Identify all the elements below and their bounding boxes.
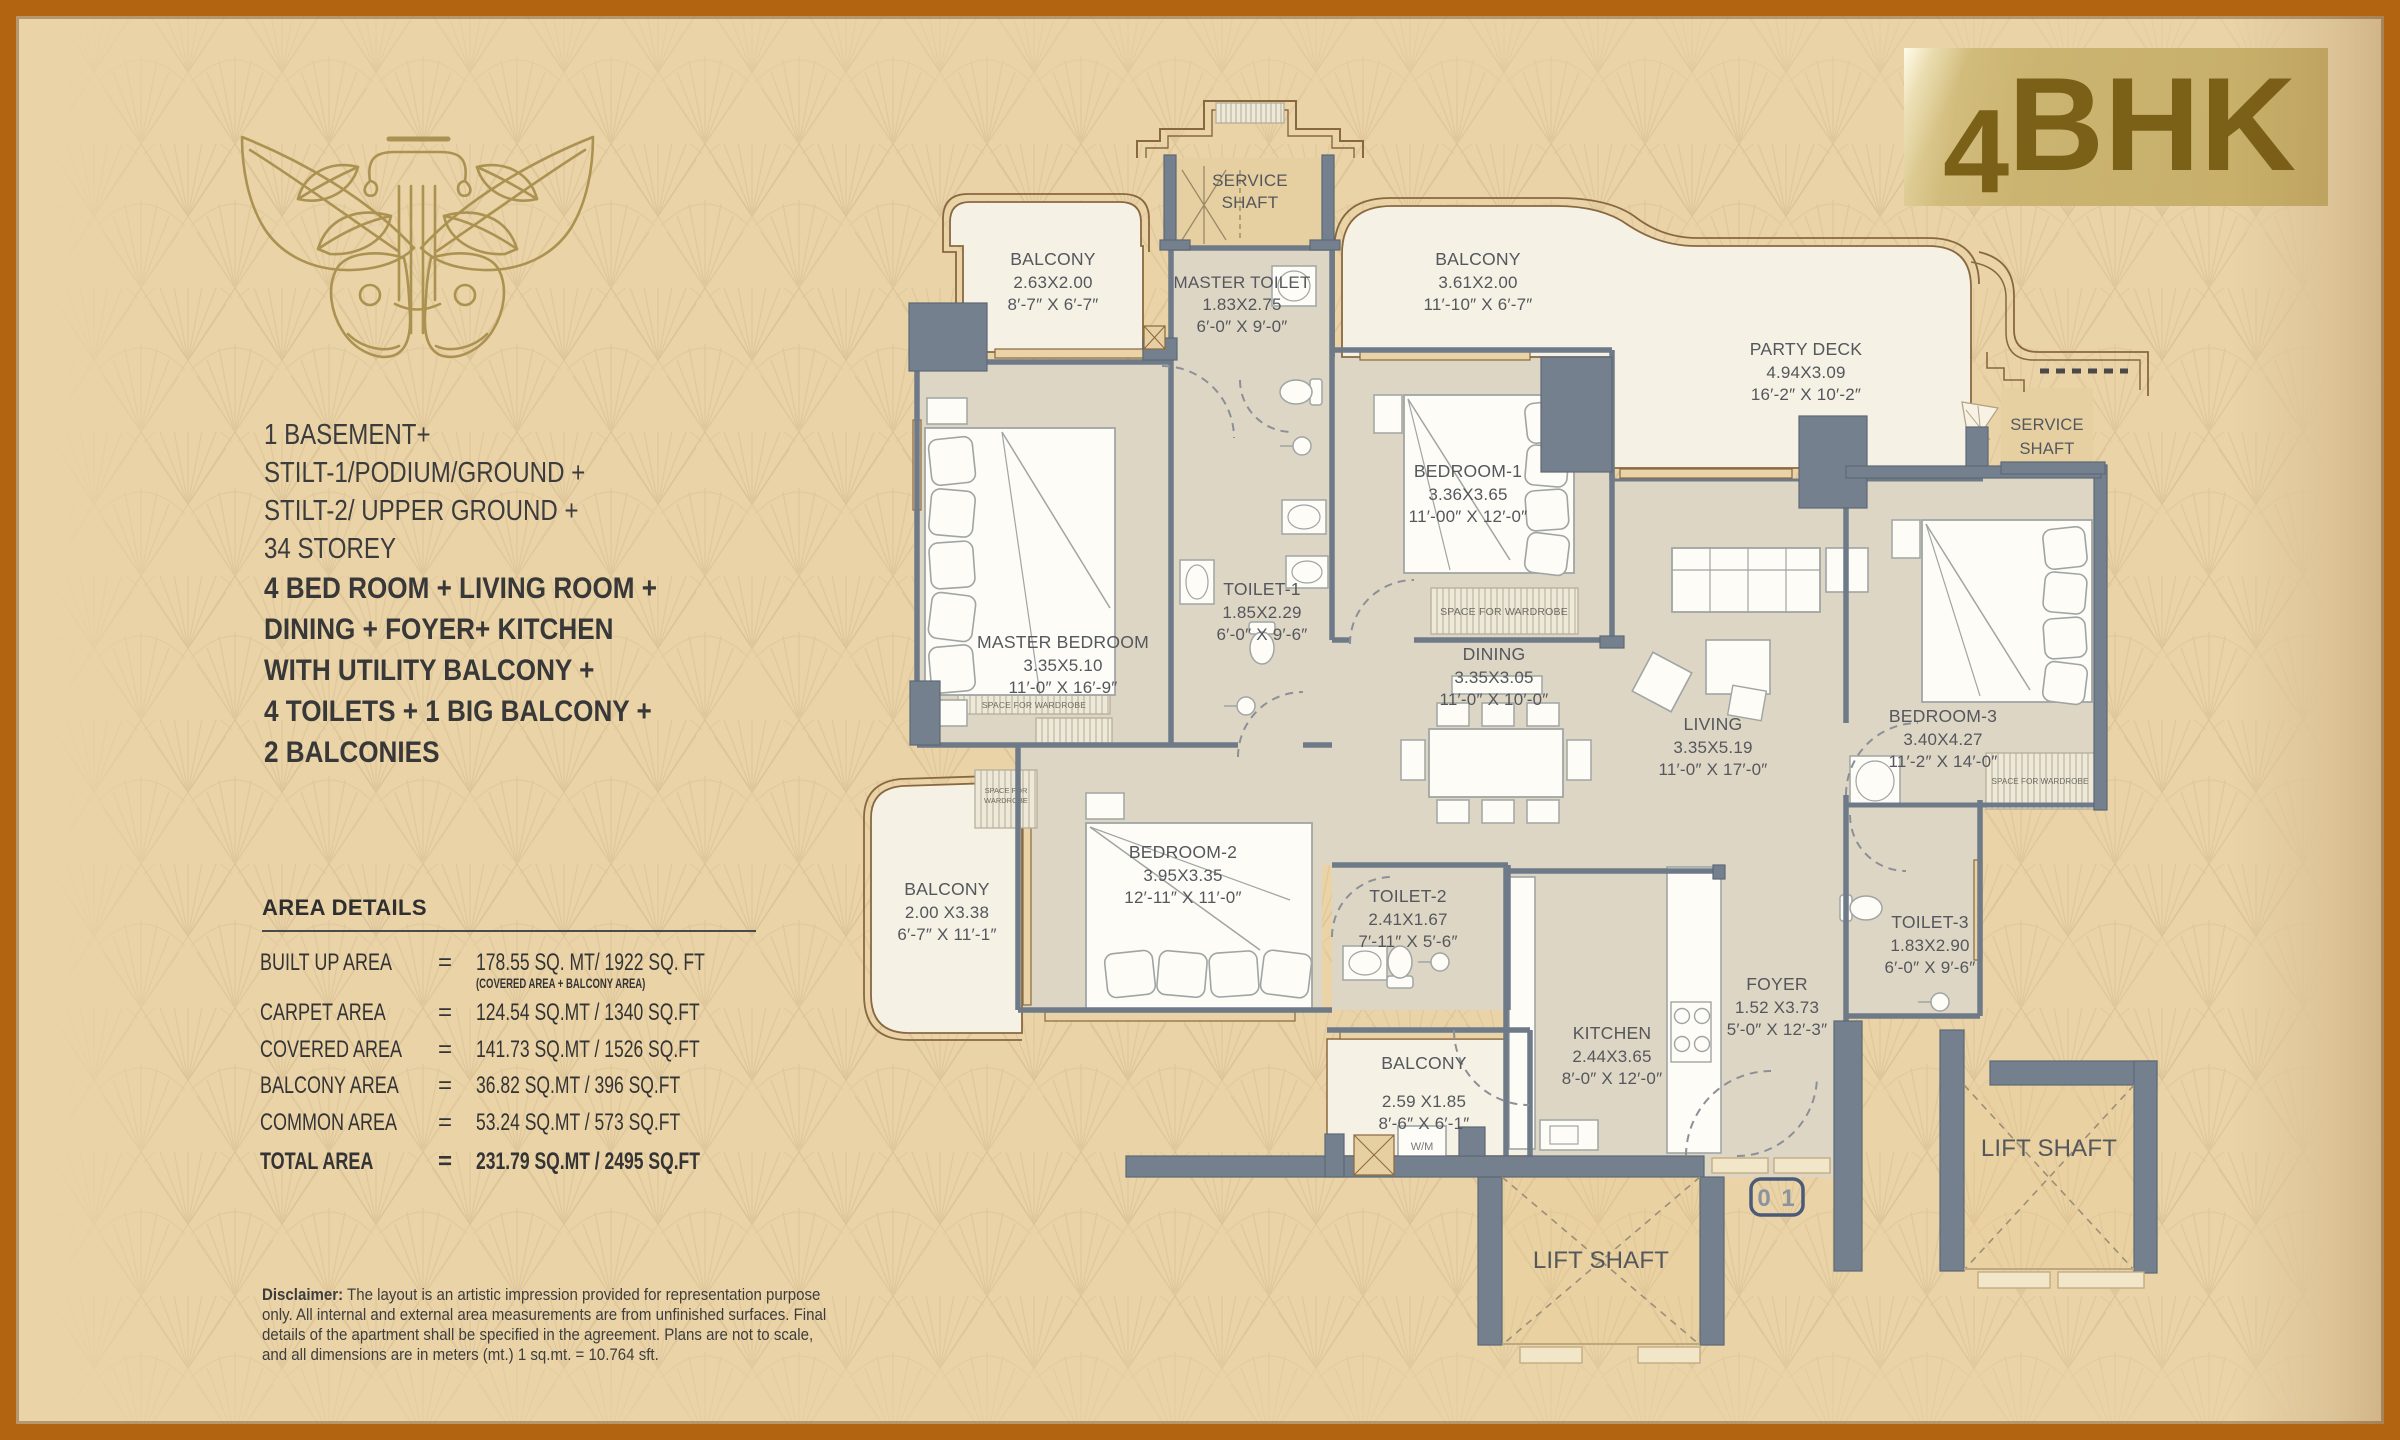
svg-text:BEDROOM-3: BEDROOM-3 bbox=[1889, 706, 1997, 726]
svg-text:11′-00″ X 12′-0″: 11′-00″ X 12′-0″ bbox=[1409, 507, 1528, 526]
svg-text:LIFT SHAFT: LIFT SHAFT bbox=[1533, 1247, 1669, 1274]
svg-text:11′-0″ X 10′-0″: 11′-0″ X 10′-0″ bbox=[1440, 690, 1549, 709]
svg-text:2.59 X1.85: 2.59 X1.85 bbox=[1382, 1092, 1466, 1111]
svg-text:5′-0″ X 12′-3″: 5′-0″ X 12′-3″ bbox=[1727, 1020, 1828, 1039]
svg-text:0 1: 0 1 bbox=[1757, 1185, 1796, 1212]
svg-text:4.94X3.09: 4.94X3.09 bbox=[1766, 363, 1845, 382]
svg-text:LIFT SHAFT: LIFT SHAFT bbox=[1981, 1135, 2117, 1162]
svg-text:6′-0″ X 9′-6″: 6′-0″ X 9′-6″ bbox=[1885, 958, 1976, 977]
svg-text:MASTER TOILET: MASTER TOILET bbox=[1173, 273, 1310, 292]
svg-text:SERVICE: SERVICE bbox=[2010, 416, 2084, 434]
svg-text:KITCHEN: KITCHEN bbox=[1573, 1023, 1652, 1043]
svg-text:SHAFT: SHAFT bbox=[1222, 193, 1279, 212]
svg-text:SPACE FOR WARDROBE: SPACE FOR WARDROBE bbox=[1440, 606, 1568, 618]
svg-text:BALCONY: BALCONY bbox=[1435, 249, 1521, 269]
svg-text:8′-0″ X 12′-0″: 8′-0″ X 12′-0″ bbox=[1562, 1069, 1663, 1088]
svg-text:SERVICE: SERVICE bbox=[1212, 171, 1288, 190]
svg-text:6′-0″ X 9′-0″: 6′-0″ X 9′-0″ bbox=[1197, 317, 1288, 336]
svg-text:TOILET-2: TOILET-2 bbox=[1369, 886, 1447, 906]
svg-text:BEDROOM-1: BEDROOM-1 bbox=[1414, 461, 1522, 481]
svg-text:SHAFT: SHAFT bbox=[2019, 440, 2074, 458]
svg-text:SPACE FOR: SPACE FOR bbox=[985, 786, 1028, 795]
svg-text:8′-7″ X 6′-7″: 8′-7″ X 6′-7″ bbox=[1008, 295, 1099, 314]
svg-text:MASTER BEDROOM: MASTER BEDROOM bbox=[977, 632, 1149, 652]
svg-text:2.00 X3.38: 2.00 X3.38 bbox=[905, 903, 989, 922]
svg-text:TOILET-1: TOILET-1 bbox=[1223, 579, 1301, 599]
svg-text:DINING: DINING bbox=[1463, 644, 1526, 664]
svg-text:6′-0″ X 9′-6″: 6′-0″ X 9′-6″ bbox=[1217, 625, 1308, 644]
svg-text:BALCONY: BALCONY bbox=[904, 879, 990, 899]
svg-text:W/M: W/M bbox=[1411, 1141, 1434, 1153]
svg-text:3.36X3.65: 3.36X3.65 bbox=[1428, 485, 1507, 504]
svg-text:3.40X4.27: 3.40X4.27 bbox=[1903, 730, 1982, 749]
svg-text:BALCONY: BALCONY bbox=[1381, 1053, 1467, 1073]
svg-text:3.35X5.19: 3.35X5.19 bbox=[1673, 738, 1752, 757]
svg-text:2.41X1.67: 2.41X1.67 bbox=[1368, 910, 1447, 929]
svg-text:12′-11″ X 11′-0″: 12′-11″ X 11′-0″ bbox=[1124, 888, 1241, 907]
svg-text:LIVING: LIVING bbox=[1684, 714, 1743, 734]
svg-text:6′-7″ X 11′-1″: 6′-7″ X 11′-1″ bbox=[897, 925, 996, 944]
svg-text:WARDROBE: WARDROBE bbox=[984, 796, 1028, 805]
svg-text:1.83X2.75: 1.83X2.75 bbox=[1202, 295, 1281, 314]
svg-text:3.35X5.10: 3.35X5.10 bbox=[1023, 656, 1102, 675]
svg-text:1.52 X3.73: 1.52 X3.73 bbox=[1735, 998, 1819, 1017]
svg-text:2.44X3.65: 2.44X3.65 bbox=[1572, 1047, 1651, 1066]
svg-text:7′-11″ X 5′-6″: 7′-11″ X 5′-6″ bbox=[1358, 932, 1457, 951]
svg-text:FOYER: FOYER bbox=[1746, 974, 1808, 994]
svg-text:3.61X2.00: 3.61X2.00 bbox=[1438, 273, 1517, 292]
svg-text:11′-0″ X 17′-0″: 11′-0″ X 17′-0″ bbox=[1659, 760, 1768, 779]
svg-text:BEDROOM-2: BEDROOM-2 bbox=[1129, 842, 1237, 862]
svg-text:3.35X3.05: 3.35X3.05 bbox=[1454, 668, 1533, 687]
svg-text:1.85X2.29: 1.85X2.29 bbox=[1222, 603, 1301, 622]
svg-text:11′-0″ X 16′-9″: 11′-0″ X 16′-9″ bbox=[1009, 678, 1118, 697]
svg-text:SPACE FOR WARDROBE: SPACE FOR WARDROBE bbox=[1992, 777, 2089, 786]
svg-text:2.63X2.00: 2.63X2.00 bbox=[1013, 273, 1092, 292]
svg-text:11′-10″ X 6′-7″: 11′-10″ X 6′-7″ bbox=[1424, 295, 1533, 314]
svg-text:1.83X2.90: 1.83X2.90 bbox=[1890, 936, 1969, 955]
svg-text:8′-6″ X 6′-1″: 8′-6″ X 6′-1″ bbox=[1379, 1114, 1470, 1133]
svg-text:BALCONY: BALCONY bbox=[1010, 249, 1096, 269]
svg-text:PARTY DECK: PARTY DECK bbox=[1750, 339, 1863, 359]
svg-text:16′-2″ X 10′-2″: 16′-2″ X 10′-2″ bbox=[1751, 385, 1861, 404]
svg-text:TOILET-3: TOILET-3 bbox=[1891, 912, 1969, 932]
svg-text:SPACE FOR WARDROBE: SPACE FOR WARDROBE bbox=[982, 700, 1086, 710]
svg-text:11′-2″ X 14′-0″: 11′-2″ X 14′-0″ bbox=[1889, 752, 1998, 771]
svg-text:3.95X3.35: 3.95X3.35 bbox=[1143, 866, 1222, 885]
